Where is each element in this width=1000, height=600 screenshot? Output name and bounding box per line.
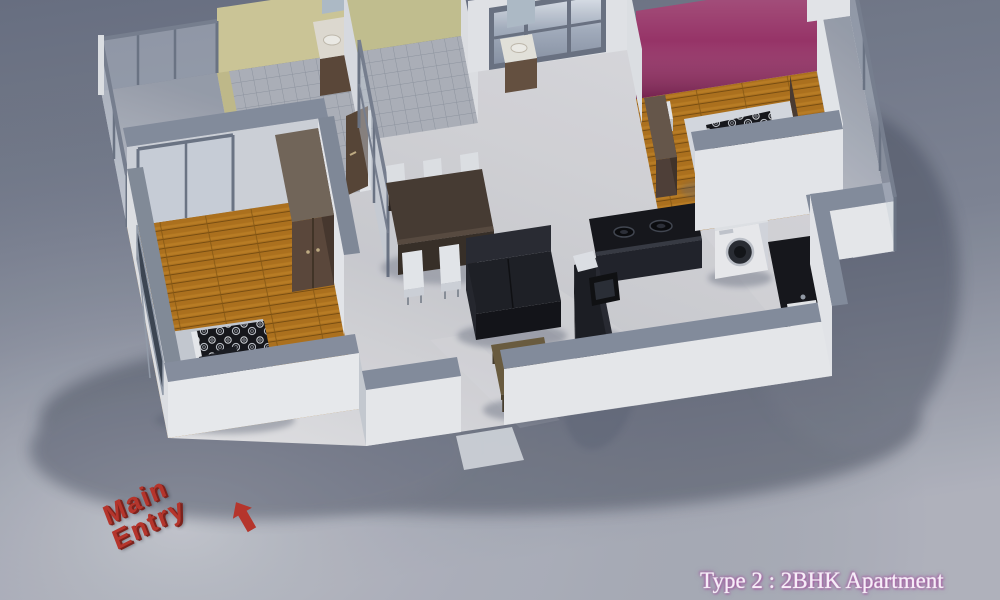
caption: Type 2 : 2BHK Apartment Area : 1106 Sq.f…	[700, 508, 944, 600]
apartment-type-label: Type 2 : 2BHK Apartment	[700, 566, 944, 595]
apartment-3d-floorplan: Main Entry Type 2 : 2BHK Apartment Area …	[0, 0, 1000, 600]
